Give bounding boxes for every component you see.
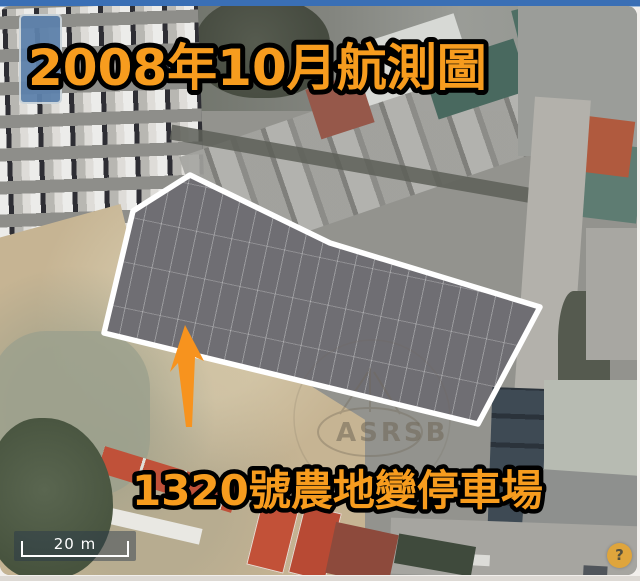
screenshot-frame: ASRSB 2008年10月航測圖 1320號農地變停車場 20 m ?	[0, 0, 640, 581]
aerial-photo	[0, 6, 637, 575]
scale-bar: 20 m	[14, 531, 136, 561]
aerial-gravel-lot	[544, 380, 637, 478]
aerial-trees	[195, 6, 330, 98]
aerial-building	[586, 228, 637, 360]
window-bottom-bar	[0, 576, 640, 581]
help-button[interactable]: ?	[607, 543, 632, 568]
scale-bar-label: 20 m	[14, 535, 136, 553]
aerial-roof	[325, 522, 398, 575]
blue-roof-rectangle	[19, 14, 62, 104]
